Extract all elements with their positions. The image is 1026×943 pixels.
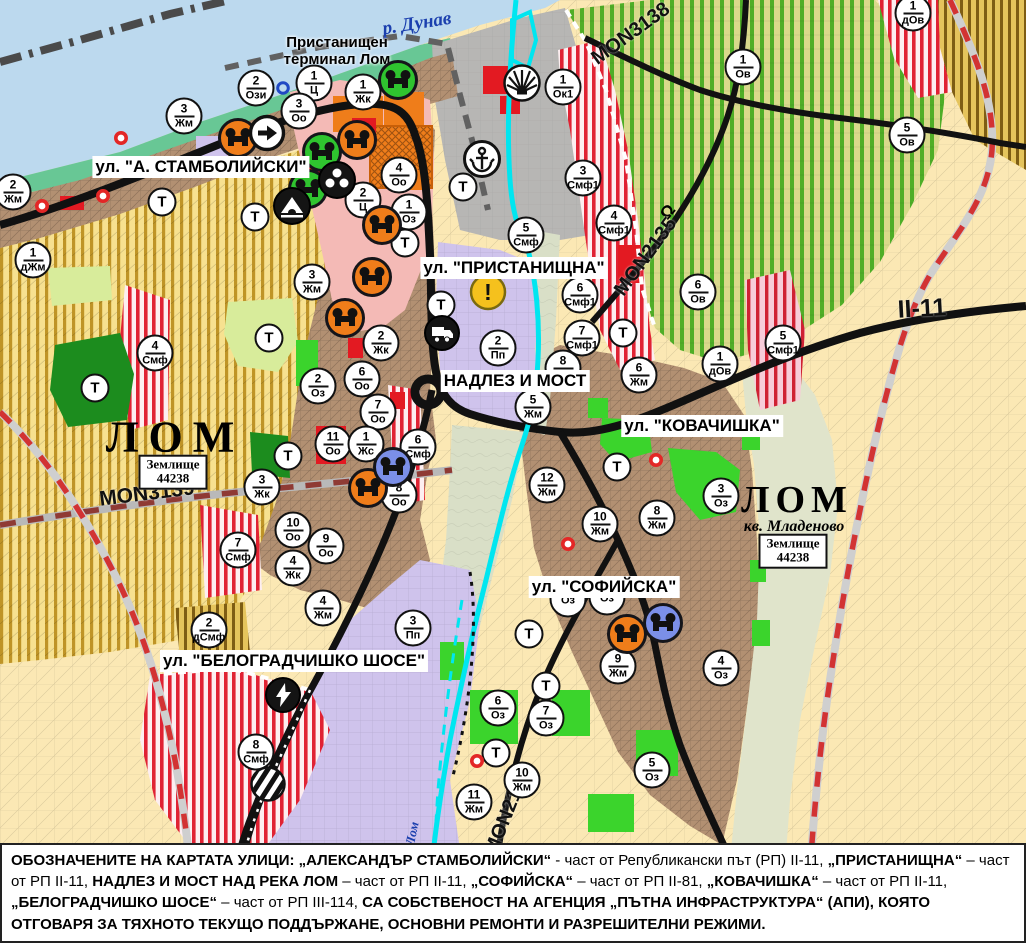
transport-stop-marker: Т: [255, 324, 284, 353]
zone-marker-code: Ов: [690, 295, 705, 306]
zone-marker-code: дОв: [902, 16, 924, 27]
zone-marker-number: 5: [780, 330, 787, 342]
zone-marker-number: 2: [378, 330, 385, 342]
zone-marker: 4Смф1: [596, 205, 633, 242]
zone-marker: 7Смф: [220, 532, 257, 569]
zone-marker-code: Оз: [714, 499, 728, 510]
zone-marker-number: 10: [286, 517, 299, 529]
zone-marker-number: 5: [649, 757, 656, 769]
zone-marker-code: Жм: [314, 611, 332, 622]
zone-marker-code: Оз: [311, 389, 325, 400]
zone-marker-number: 3: [580, 165, 587, 177]
zone-marker-number: 3: [296, 98, 303, 110]
zone-marker-number: 1: [30, 247, 37, 259]
zone-marker-code: Смф1: [567, 181, 599, 192]
zone-marker-code: Ози: [246, 91, 267, 102]
transport-stop-marker: Т: [532, 672, 561, 701]
zone-marker-code: Оо: [291, 114, 306, 125]
culture-monument-icon: [361, 204, 403, 246]
zone-marker-number: 3: [410, 615, 417, 627]
zone-marker-code: Смф: [142, 356, 168, 367]
zone-marker: 3Оо: [281, 93, 318, 130]
zone-marker-code: Оо: [391, 178, 406, 189]
zone-marker: 5Оз: [634, 752, 671, 789]
transport-stop-marker: Т: [515, 620, 544, 649]
zone-marker-number: 12: [540, 472, 553, 484]
zone-marker-number: 11: [468, 789, 481, 801]
zone-marker: 5Смф: [508, 217, 545, 254]
zone-marker-number: 4: [396, 162, 403, 174]
zone-marker: 6Смф1: [562, 277, 599, 314]
zone-marker: 1дЖм: [15, 242, 52, 279]
transport-stop-marker: Т: [609, 319, 638, 348]
zone-marker: 12Жм: [529, 467, 566, 504]
map-caption: ОБОЗНАЧЕНИТЕ НА КАРТАТА УЛИЦИ: „АЛЕКСАНД…: [0, 843, 1026, 943]
zone-marker-number: 6: [577, 282, 584, 294]
zone-marker-number: 5: [530, 394, 537, 406]
zone-marker: 5Жм: [515, 389, 552, 426]
people-group-icon: [317, 160, 357, 200]
transport-stop-marker: Т: [148, 188, 177, 217]
zone-marker: 6Ов: [680, 274, 717, 311]
zone-marker: 3Оз: [703, 478, 740, 515]
zone-marker: 2дСмф: [191, 612, 228, 649]
zone-marker-code: Жм: [465, 805, 483, 816]
zone-marker: 4Смф: [137, 335, 174, 372]
zone-marker-code: Смф1: [566, 341, 598, 352]
culture-monument-icon: [642, 602, 684, 644]
zone-marker: 10Оо: [275, 512, 312, 549]
zone-marker-number: 11: [327, 431, 340, 443]
zone-marker: 2Жк: [363, 325, 400, 362]
truck-terminal-icon: [423, 314, 461, 352]
culture-monument-icon: [377, 59, 419, 101]
zone-marker-number: 2: [253, 75, 260, 87]
zone-marker-number: 4: [290, 555, 297, 567]
caption-segment: „ПРИСТАНИЩНА“: [828, 852, 963, 869]
zone-marker: 3Жм: [166, 98, 203, 135]
zone-marker-number: 2: [495, 335, 502, 347]
one-way-arrow-icon: [248, 114, 286, 152]
street-name-label: ул. "СОФИЙСКА": [529, 576, 680, 598]
zone-marker-number: 1: [717, 351, 724, 363]
zone-marker-number: 6: [695, 279, 702, 291]
zone-marker: 3Смф1: [565, 160, 602, 197]
caption-segment: „БЕЛОГРАДЧИШКО ШОСЕ“: [11, 894, 217, 911]
zone-marker-number: 6: [495, 695, 502, 707]
zone-marker-number: 3: [309, 269, 316, 281]
zone-marker: 1Ов: [725, 49, 762, 86]
point-of-interest-dot-icon: [113, 130, 130, 147]
zone-marker-number: 3: [181, 103, 188, 115]
zone-marker-number: 8: [560, 355, 567, 367]
zone-marker: 1дОв: [702, 346, 739, 383]
zone-marker-code: Жм: [630, 378, 648, 389]
zone-marker-code: Жм: [609, 669, 627, 680]
zone-marker-number: 10: [515, 767, 528, 779]
caption-segment: – част от РП III-114,: [217, 894, 362, 911]
lighthouse-rays-icon: [502, 63, 542, 103]
zone-marker: 5Смф1: [765, 325, 802, 362]
zone-marker: 5Ов: [889, 117, 926, 154]
street-name-label: ул. "КОВАЧИШКА": [621, 415, 783, 437]
zone-marker-code: Оз: [491, 711, 505, 722]
zone-marker-code: Жк: [355, 95, 370, 106]
zone-marker-number: 9: [323, 533, 330, 545]
zone-marker-number: 3: [259, 474, 266, 486]
zone-marker: 4Оз: [703, 650, 740, 687]
caption-segment: „СОФИЙСКА“: [471, 873, 573, 890]
zone-marker-number: 2: [315, 373, 322, 385]
zone-marker: 2Ози: [238, 70, 275, 107]
zone-marker-code: Пп: [406, 631, 421, 642]
caption-segment: – част от РП II-11,: [819, 873, 947, 890]
land-parcel-box: Землище 44238: [138, 455, 207, 490]
zone-marker: 2Пп: [480, 330, 517, 367]
caption-segment: „КОВАЧИШКА“: [707, 873, 819, 890]
zone-marker-number: 4: [718, 655, 725, 667]
transport-stop-marker: Т: [274, 442, 303, 471]
zone-marker-code: Ов: [899, 138, 914, 149]
zone-marker: 6Жм: [621, 357, 658, 394]
zone-marker-number: 1: [360, 79, 367, 91]
transport-stop-marker: Т: [603, 453, 632, 482]
land-parcel-box: Землище 44238: [758, 534, 827, 569]
point-of-interest-dot-icon: [648, 452, 665, 469]
zone-marker: 9Оо: [308, 528, 345, 565]
zone-marker-code: Жм: [175, 119, 193, 130]
culture-monument-icon: [351, 256, 393, 298]
zone-marker-code: Оз: [645, 773, 659, 784]
zone-marker-number: 1: [740, 54, 747, 66]
zone-marker-number: 6: [636, 362, 643, 374]
zone-marker-number: 1: [560, 74, 567, 86]
zone-marker-code: Оз: [539, 721, 553, 732]
zone-marker-code: дОв: [709, 367, 731, 378]
zone-marker-code: Смф: [513, 238, 539, 249]
point-of-interest-dot-icon: [560, 536, 577, 553]
zone-marker-number: 2: [10, 179, 17, 191]
point-of-interest-dot-icon: [469, 753, 486, 770]
zone-marker: 2Оз: [300, 368, 337, 405]
zone-marker-code: Смф1: [767, 346, 799, 357]
street-name-label: ул. "А. СТАМБОЛИЙСКИ": [92, 156, 309, 178]
zone-marker: 3Жк: [244, 469, 281, 506]
transport-stop-marker: Т: [482, 739, 511, 768]
zone-marker-number: 4: [611, 210, 618, 222]
caption-segment: – част от РП II-11,: [338, 873, 471, 890]
zone-marker: 4Оо: [381, 157, 418, 194]
zone-marker-number: 5: [904, 122, 911, 134]
zone-marker: 10Жм: [504, 762, 541, 799]
zone-marker-code: Жк: [285, 571, 300, 582]
street-name-label: ул. "БЕЛОГРАДЧИШКО ШОСЕ": [160, 650, 428, 672]
zone-marker-code: Жк: [373, 346, 388, 357]
zone-marker-code: Оо: [325, 447, 340, 458]
caption-segment: – част от РП II-81,: [573, 873, 707, 890]
zone-marker-code: Оо: [391, 498, 406, 509]
zone-marker-number: 1: [363, 431, 370, 443]
zone-marker-code: Ов: [735, 70, 750, 81]
zone-marker-number: 1: [311, 70, 318, 82]
transport-stop-marker: Т: [81, 374, 110, 403]
zone-marker: 4Жк: [275, 550, 312, 587]
caption-segment: НАДЛЕЗ И МОСТ НАД РЕКА ЛОМ: [92, 873, 338, 890]
zone-marker-number: 1: [910, 0, 917, 12]
zone-marker: 10Жм: [582, 506, 619, 543]
zone-marker-number: 5: [523, 222, 530, 234]
caption-segment: ОБОЗНАЧЕНИТЕ НА КАРТАТА УЛИЦИ:: [11, 852, 299, 869]
zone-marker: 7Оз: [528, 700, 565, 737]
point-of-interest-dot-icon: [95, 188, 112, 205]
zoning-map-canvas: 2Ози1Ц1Жк3Оо1Ок13Жм2Жм1дЖм4Оо2Ц1Оз3Жм5См…: [0, 0, 1026, 943]
zone-marker-code: Жм: [513, 783, 531, 794]
zone-marker-code: Жм: [303, 285, 321, 296]
zone-marker-code: Ок1: [553, 90, 573, 101]
port-terminal-label: Пристанищен терминал Лом: [284, 34, 391, 69]
caption-segment: „АЛЕКСАНДЪР СТАМБОЛИЙСКИ“: [299, 852, 551, 869]
zone-marker-code: Жм: [591, 527, 609, 538]
zone-marker-number: 7: [579, 325, 586, 337]
zone-marker-number: 3: [718, 483, 725, 495]
zone-marker-code: дЖм: [20, 263, 45, 274]
zone-marker: 6Оз: [480, 690, 517, 727]
zone-marker-code: Смф: [243, 755, 269, 766]
street-name-label: ул. "ПРИСТАНИЩНА": [420, 257, 607, 279]
zone-marker-code: Жм: [524, 410, 542, 421]
zone-marker-code: Оо: [318, 549, 333, 560]
zone-marker-number: 10: [593, 511, 606, 523]
road-number-label: II-11: [897, 293, 947, 325]
transport-stop-marker: Т: [241, 203, 270, 232]
zone-marker-number: 8: [253, 739, 260, 751]
zone-marker-code: Оо: [285, 533, 300, 544]
zone-marker-code: Оз: [714, 671, 728, 682]
zone-marker-number: 8: [654, 505, 661, 517]
zone-marker-code: Жм: [4, 195, 22, 206]
zone-marker-code: дСмф: [193, 633, 226, 644]
culture-monument-icon: [324, 297, 366, 339]
zone-marker-number: 2: [206, 617, 213, 629]
zone-marker-code: Смф: [225, 553, 251, 564]
culture-monument-icon: [372, 446, 414, 488]
zone-marker-code: Оо: [370, 415, 385, 426]
zone-marker-number: 2: [360, 187, 367, 199]
zone-marker-code: Жм: [648, 521, 666, 532]
zone-marker: 6Оо: [344, 361, 381, 398]
zone-marker: 11Оо: [315, 426, 352, 463]
power-station-icon: [264, 676, 302, 714]
zone-marker: 8Жм: [639, 500, 676, 537]
zone-marker: 11Жм: [456, 784, 493, 821]
railway-crossing-icon: [249, 765, 287, 803]
zone-marker: 1Жк: [345, 74, 382, 111]
zone-marker-number: 7: [543, 705, 550, 717]
zone-marker-code: Смф1: [598, 226, 630, 237]
zone-marker-number: 7: [235, 537, 242, 549]
zone-marker-code: Оо: [354, 382, 369, 393]
zone-marker: 3Жм: [294, 264, 331, 301]
street-name-label: НАДЛЕЗ И МОСТ: [441, 370, 590, 392]
zone-marker-code: Оз: [402, 215, 416, 226]
zone-marker-code: Жк: [254, 490, 269, 501]
cave-monument-icon: [272, 186, 312, 226]
zone-marker-code: Жм: [538, 488, 556, 499]
zone-marker-number: 1: [406, 199, 413, 211]
zone-marker-number: 4: [152, 340, 159, 352]
zone-marker: 1Ок1: [545, 69, 582, 106]
port-anchor-icon: [462, 139, 502, 179]
point-of-interest-dot-icon: [34, 198, 51, 215]
svg-text:!: !: [484, 279, 492, 305]
zone-marker-code: Пп: [491, 351, 506, 362]
caption-segment: - част от Републикански път (РП) II-11,: [551, 852, 827, 869]
zone-marker-code: Ц: [310, 86, 318, 97]
zone-marker-code: Смф1: [564, 298, 596, 309]
zone-marker-number: 4: [320, 595, 327, 607]
zone-marker-number: 6: [359, 366, 366, 378]
zone-marker-number: 7: [375, 399, 382, 411]
zone-marker-number: 6: [415, 434, 422, 446]
zone-marker: 3Пп: [395, 610, 432, 647]
lom-city-label-east: ЛОМ: [741, 478, 853, 522]
zone-marker: 4Жм: [305, 590, 342, 627]
blue-ring-icon: [275, 80, 291, 96]
